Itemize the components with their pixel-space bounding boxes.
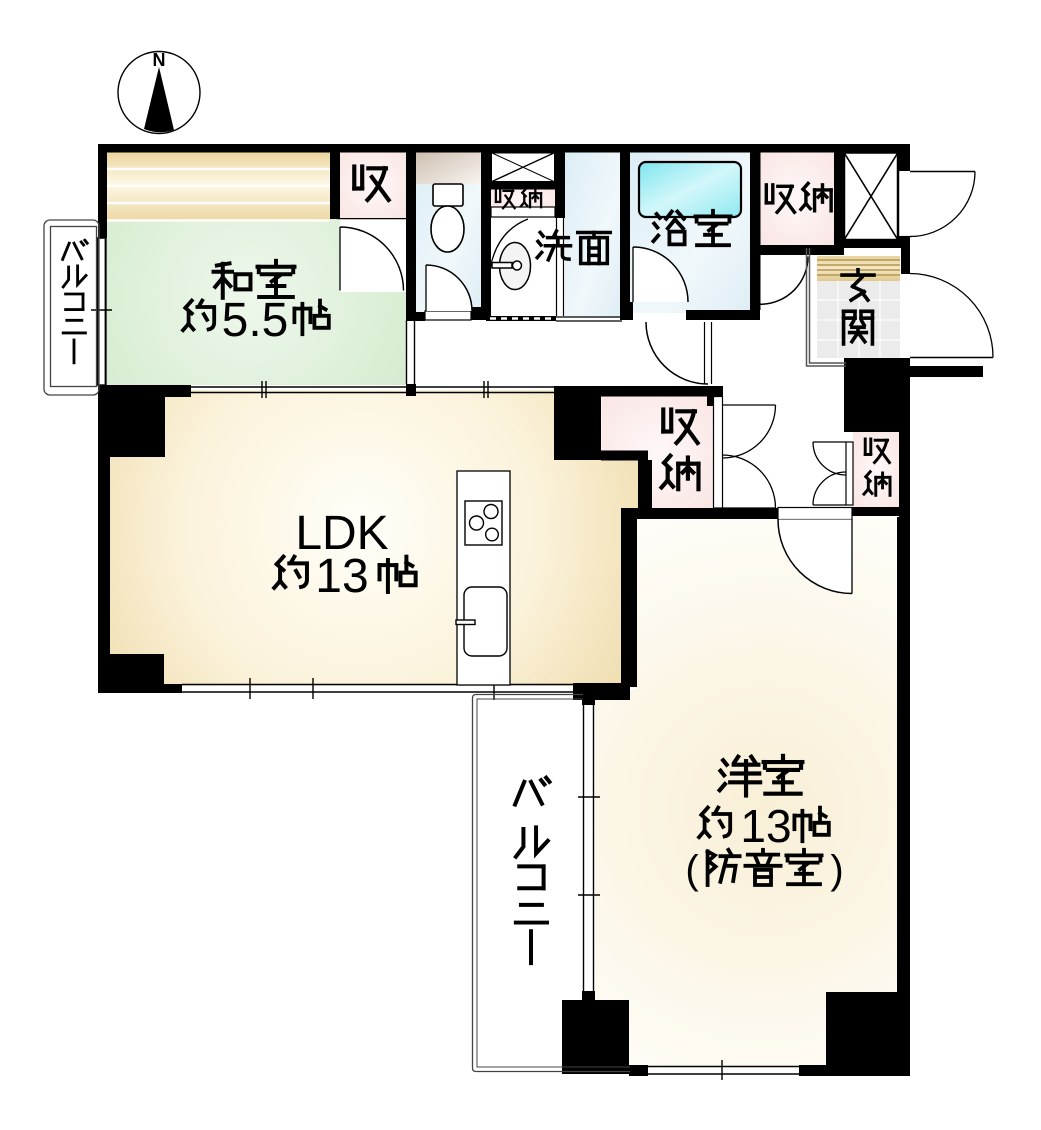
svg-text:(: ( <box>685 848 699 892</box>
svg-text:): ) <box>830 848 843 892</box>
svg-text:13: 13 <box>740 800 791 852</box>
svg-text:5.5: 5.5 <box>222 294 289 347</box>
svg-text:13: 13 <box>315 550 368 603</box>
svg-text:N: N <box>153 50 166 70</box>
